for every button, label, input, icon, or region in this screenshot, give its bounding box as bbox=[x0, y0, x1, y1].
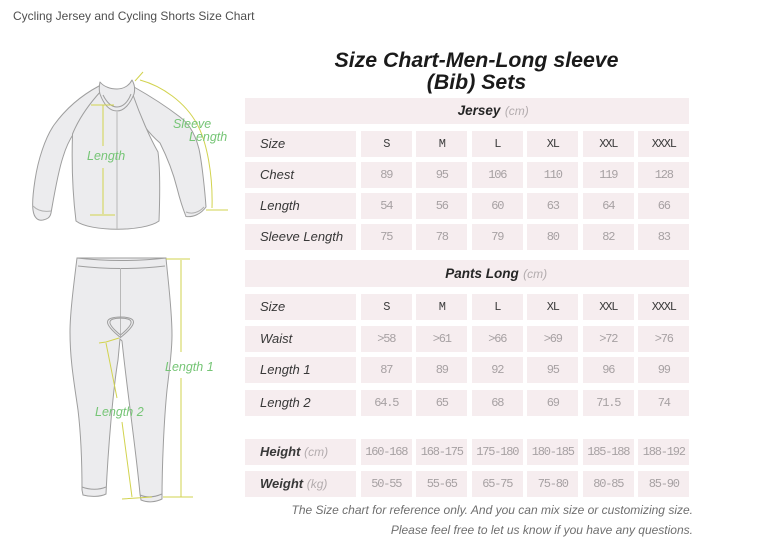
svg-text:Length: Length bbox=[87, 149, 125, 163]
svg-text:Sleeve: Sleeve bbox=[173, 117, 211, 131]
svg-text:Length 2: Length 2 bbox=[95, 405, 144, 419]
svg-text:Length: Length bbox=[189, 130, 227, 144]
svg-text:Length 1: Length 1 bbox=[165, 360, 214, 374]
